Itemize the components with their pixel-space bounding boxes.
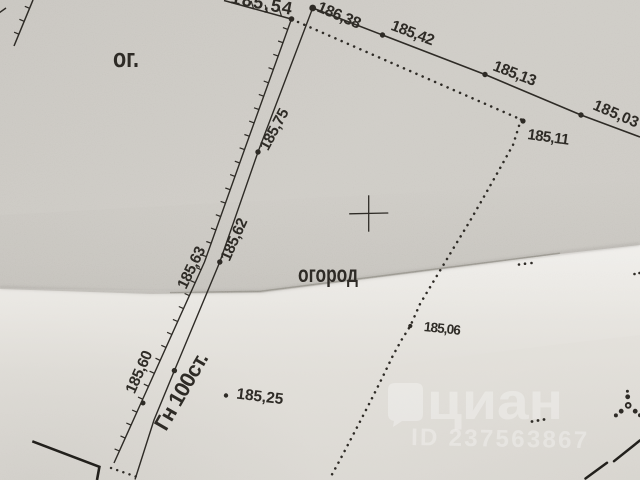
svg-text:ог.: ог.: [113, 43, 139, 73]
svg-text:циан: циан: [427, 373, 563, 431]
svg-text:огород: огород: [298, 261, 358, 287]
svg-text:ID 237563867: ID 237563867: [411, 424, 588, 454]
